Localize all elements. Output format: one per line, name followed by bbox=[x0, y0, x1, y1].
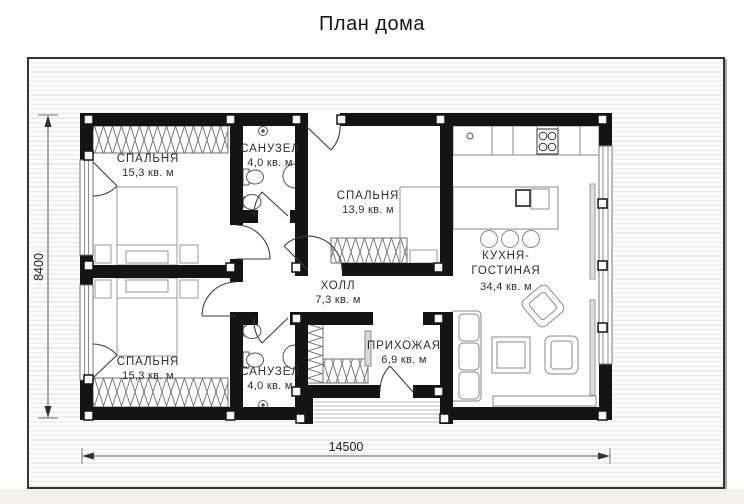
floor-plan: СПАЛЬНЯ 15,3 кв. м САНУЗЕЛ 4,0 кв. м СПА… bbox=[0, 0, 744, 504]
dimension-width-label: 14500 bbox=[329, 440, 364, 454]
room-label-entry: ПРИХОЖАЯ bbox=[367, 340, 441, 352]
room-label-kitchen-1: КУХНЯ- bbox=[482, 250, 530, 262]
room-label-bathroom-top: САНУЗЕЛ bbox=[240, 143, 300, 155]
room-label-kitchen-2: ГОСТИНАЯ bbox=[471, 265, 540, 277]
dimension-height-label: 8400 bbox=[32, 253, 46, 281]
room-area-entry: 6,9 кв. м bbox=[381, 354, 426, 366]
room-label-bedroom-bottom: СПАЛЬНЯ bbox=[117, 356, 180, 368]
room-area-bedroom-top: 15,3 кв. м bbox=[122, 167, 174, 179]
page: План дома bbox=[0, 0, 744, 504]
room-area-kitchen: 34,4 кв. м bbox=[480, 281, 532, 293]
room-label-hall: ХОЛЛ bbox=[321, 280, 356, 292]
dimension-width: 14500 bbox=[82, 440, 610, 464]
room-area-bathroom-top: 4,0 кв. м bbox=[247, 157, 292, 169]
room-area-hall: 7,3 кв. м bbox=[315, 294, 360, 306]
room-area-bathroom-bottom: 4,0 кв. м bbox=[247, 380, 292, 392]
room-label-bathroom-bottom: САНУЗЕЛ bbox=[240, 366, 300, 378]
room-area-bedroom-bottom: 15,3 кв. м bbox=[122, 370, 174, 382]
room-area-bedroom-middle: 13,9 кв. м bbox=[342, 204, 394, 216]
room-label-bedroom-middle: СПАЛЬНЯ bbox=[337, 190, 400, 202]
room-label-bedroom-top: СПАЛЬНЯ bbox=[117, 153, 180, 165]
dimension-height: 8400 bbox=[32, 115, 58, 418]
